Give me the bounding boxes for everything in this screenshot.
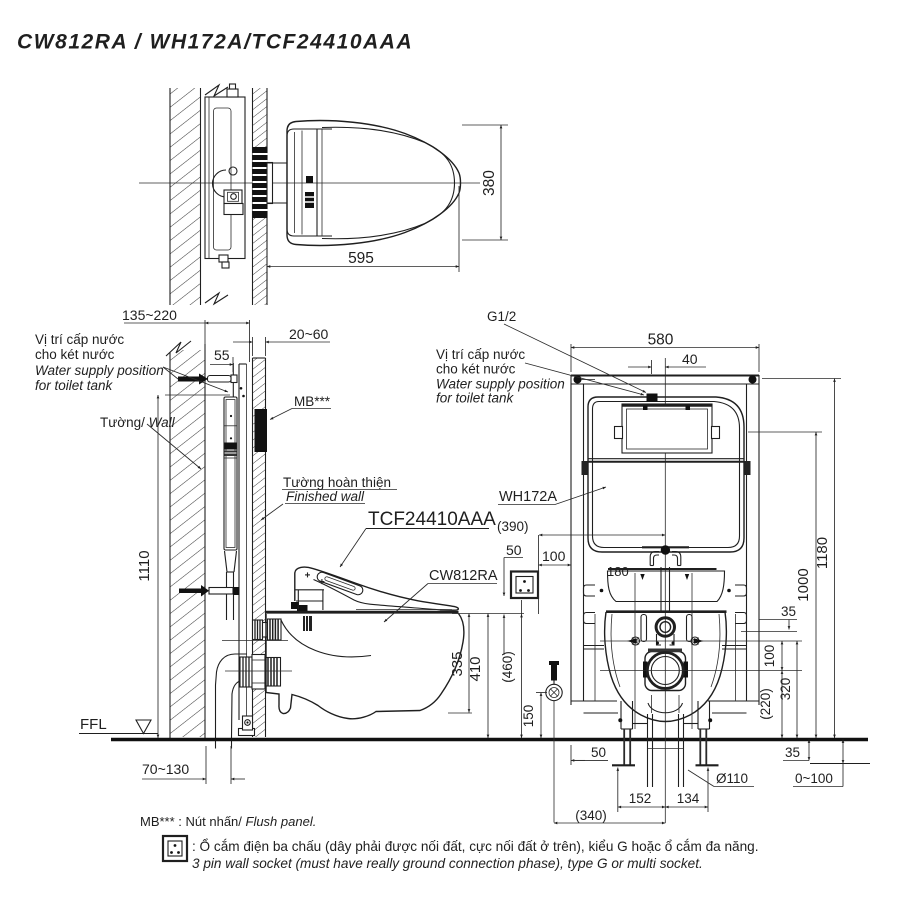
svg-text:0~100: 0~100 — [795, 771, 833, 786]
svg-text:(220): (220) — [758, 688, 773, 720]
svg-text:FFL: FFL — [80, 716, 107, 733]
svg-text:20~60: 20~60 — [289, 326, 329, 342]
svg-text:Ø110: Ø110 — [716, 771, 748, 786]
svg-text:50: 50 — [591, 745, 606, 760]
svg-text:380: 380 — [481, 170, 498, 196]
svg-text:180: 180 — [607, 564, 629, 579]
svg-text:MB***: MB*** — [294, 394, 331, 409]
svg-text:for toilet tank: for toilet tank — [436, 391, 515, 406]
svg-text:320: 320 — [778, 678, 793, 701]
svg-text:410: 410 — [467, 656, 484, 681]
svg-text:G1/2: G1/2 — [487, 309, 516, 324]
svg-text:100: 100 — [762, 645, 777, 668]
svg-text:150: 150 — [521, 705, 536, 728]
svg-text:135~220: 135~220 — [122, 307, 177, 323]
svg-text:WH172A: WH172A — [499, 489, 557, 505]
svg-text:Vị trí cấp nước: Vị trí cấp nước — [436, 347, 525, 362]
svg-text:Vị trí cấp nước: Vị trí cấp nước — [35, 332, 124, 347]
svg-text:(390): (390) — [497, 519, 529, 534]
svg-text:CW812RA / WH172A/TCF24410AAA: CW812RA / WH172A/TCF24410AAA — [17, 31, 413, 54]
svg-text:1180: 1180 — [814, 537, 831, 569]
svg-text:3 pin wall socket (must have r: 3 pin wall socket (must have really grou… — [192, 856, 703, 871]
svg-text:: Ổ cắm điện ba chấu (dây phải: : Ổ cắm điện ba chấu (dây phải được nối … — [192, 839, 759, 854]
svg-text:595: 595 — [348, 250, 374, 267]
svg-text:Tường/ Wall: Tường/ Wall — [100, 415, 176, 430]
svg-text:cho két nước: cho két nước — [35, 347, 115, 362]
svg-text:for toilet tank: for toilet tank — [35, 378, 114, 393]
svg-text:(460): (460) — [500, 651, 515, 683]
svg-text:152: 152 — [629, 791, 652, 806]
svg-text:40: 40 — [682, 351, 698, 367]
svg-text:Finished wall: Finished wall — [286, 489, 365, 504]
svg-text:335: 335 — [449, 651, 466, 676]
svg-text:100: 100 — [542, 548, 566, 564]
svg-text:580: 580 — [648, 332, 674, 349]
svg-text:Water supply position: Water supply position — [35, 363, 164, 378]
svg-text:cho két nước: cho két nước — [436, 362, 516, 377]
svg-text:70~130: 70~130 — [142, 761, 189, 777]
svg-text:35: 35 — [785, 745, 800, 760]
svg-text:Water supply position: Water supply position — [436, 377, 565, 392]
svg-text:50: 50 — [506, 542, 522, 558]
svg-text:1000: 1000 — [795, 568, 812, 601]
svg-text:CW812RA: CW812RA — [429, 568, 498, 584]
svg-text:35: 35 — [781, 604, 796, 619]
svg-text:55: 55 — [214, 347, 230, 363]
svg-text:(340): (340) — [575, 808, 607, 823]
svg-text:TCF24410AAA: TCF24410AAA — [368, 509, 496, 530]
svg-text:MB*** : Nút nhấn/ Flush panel.: MB*** : Nút nhấn/ Flush panel. — [140, 814, 316, 829]
svg-text:134: 134 — [677, 791, 700, 806]
svg-text:Tường hoàn thiện: Tường hoàn thiện — [283, 475, 391, 490]
svg-text:1110: 1110 — [136, 550, 153, 581]
